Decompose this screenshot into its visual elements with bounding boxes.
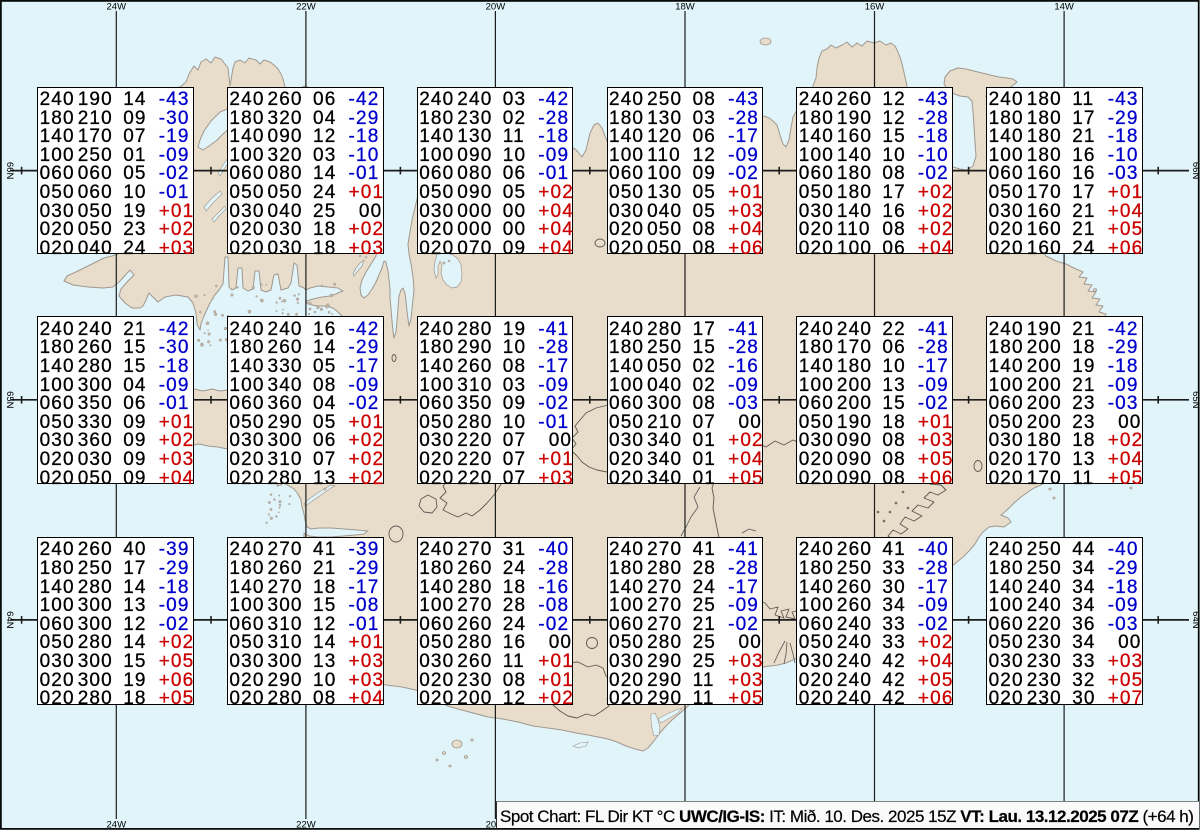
- svg-text:22W: 22W: [296, 2, 316, 13]
- svg-text:22W: 22W: [296, 820, 316, 830]
- svg-text:20W: 20W: [486, 2, 506, 13]
- svg-text:14W: 14W: [1054, 2, 1074, 13]
- svg-text:64N: 64N: [4, 611, 15, 629]
- svg-text:18W: 18W: [675, 2, 695, 13]
- svg-text:66N: 66N: [4, 162, 15, 180]
- svg-text:16W: 16W: [865, 2, 885, 13]
- svg-text:64N: 64N: [1190, 611, 1200, 629]
- svg-text:65N: 65N: [1190, 391, 1200, 409]
- svg-text:24W: 24W: [107, 2, 127, 13]
- svg-text:66N: 66N: [1190, 162, 1200, 180]
- svg-text:24W: 24W: [107, 820, 127, 830]
- svg-text:65N: 65N: [4, 391, 15, 409]
